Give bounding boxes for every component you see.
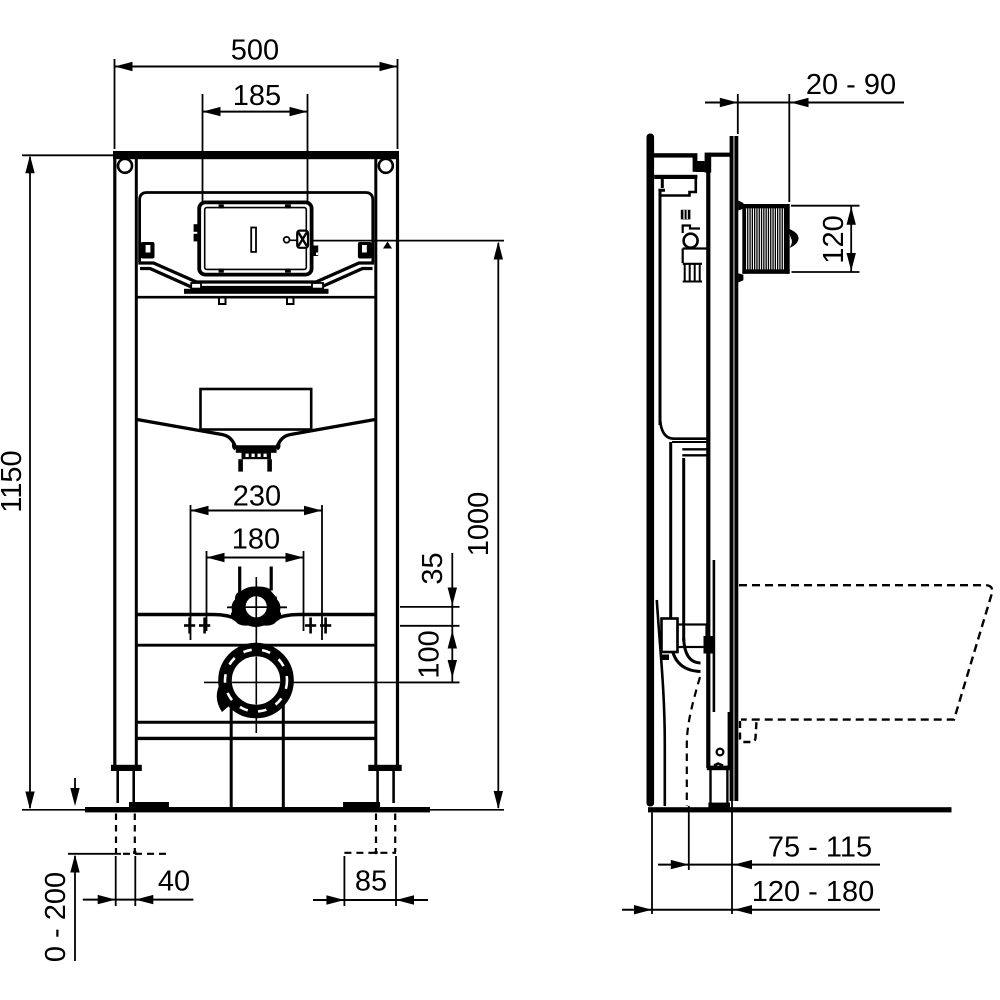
svg-text:0 - 200: 0 - 200 — [40, 872, 72, 962]
svg-text:120 - 180: 120 - 180 — [752, 876, 875, 908]
svg-text:40: 40 — [158, 866, 190, 898]
svg-text:500: 500 — [231, 35, 279, 67]
svg-text:230: 230 — [233, 481, 281, 513]
svg-text:85: 85 — [355, 866, 387, 898]
svg-text:1000: 1000 — [463, 492, 495, 557]
svg-text:100: 100 — [414, 630, 446, 678]
svg-text:180: 180 — [232, 524, 280, 556]
svg-text:185: 185 — [233, 80, 281, 112]
svg-text:1150: 1150 — [0, 450, 28, 512]
svg-text:20 - 90: 20 - 90 — [806, 69, 896, 101]
svg-text:75 - 115: 75 - 115 — [768, 832, 872, 864]
svg-text:35: 35 — [417, 552, 449, 584]
svg-text:120: 120 — [818, 215, 850, 263]
